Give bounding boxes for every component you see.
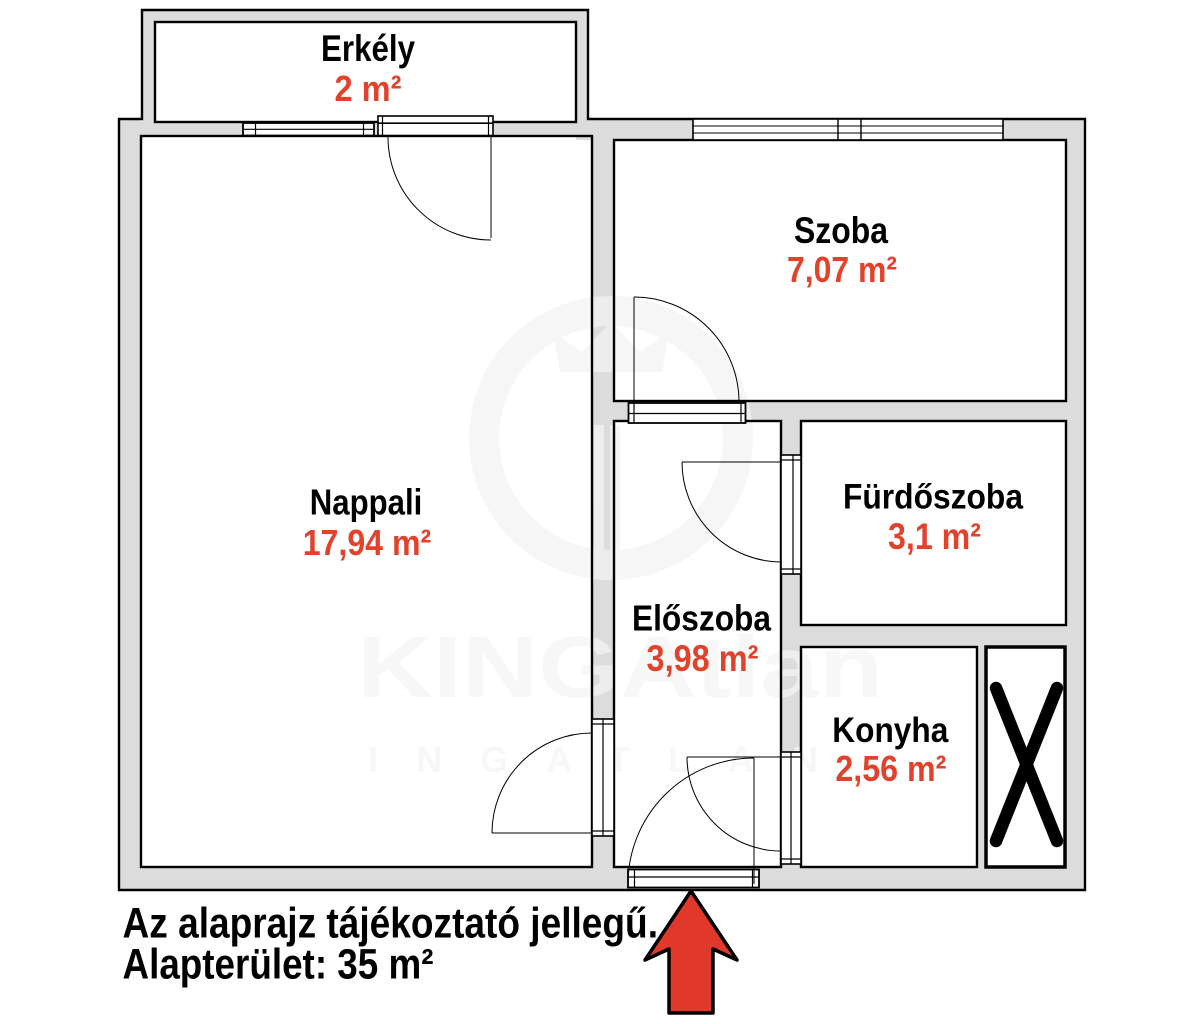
svg-text:Fürdőszoba: Fürdőszoba [843,478,1023,517]
svg-text:17,94 m²: 17,94 m² [303,522,432,563]
svg-text:Nappali: Nappali [310,482,423,523]
svg-text:Alapterület: 35 m²: Alapterület: 35 m² [123,941,434,989]
svg-text:3,98 m²: 3,98 m² [647,638,759,679]
svg-text:Erkély: Erkély [321,28,415,69]
svg-text:3,1 m²: 3,1 m² [888,516,981,557]
svg-text:2,56 m²: 2,56 m² [835,748,946,789]
svg-text:Előszoba: Előszoba [632,598,772,639]
svg-text:Szoba: Szoba [794,210,888,251]
svg-text:Konyha: Konyha [832,711,948,750]
svg-text:2 m²: 2 m² [335,68,402,109]
svg-text:7,07 m²: 7,07 m² [787,249,897,290]
